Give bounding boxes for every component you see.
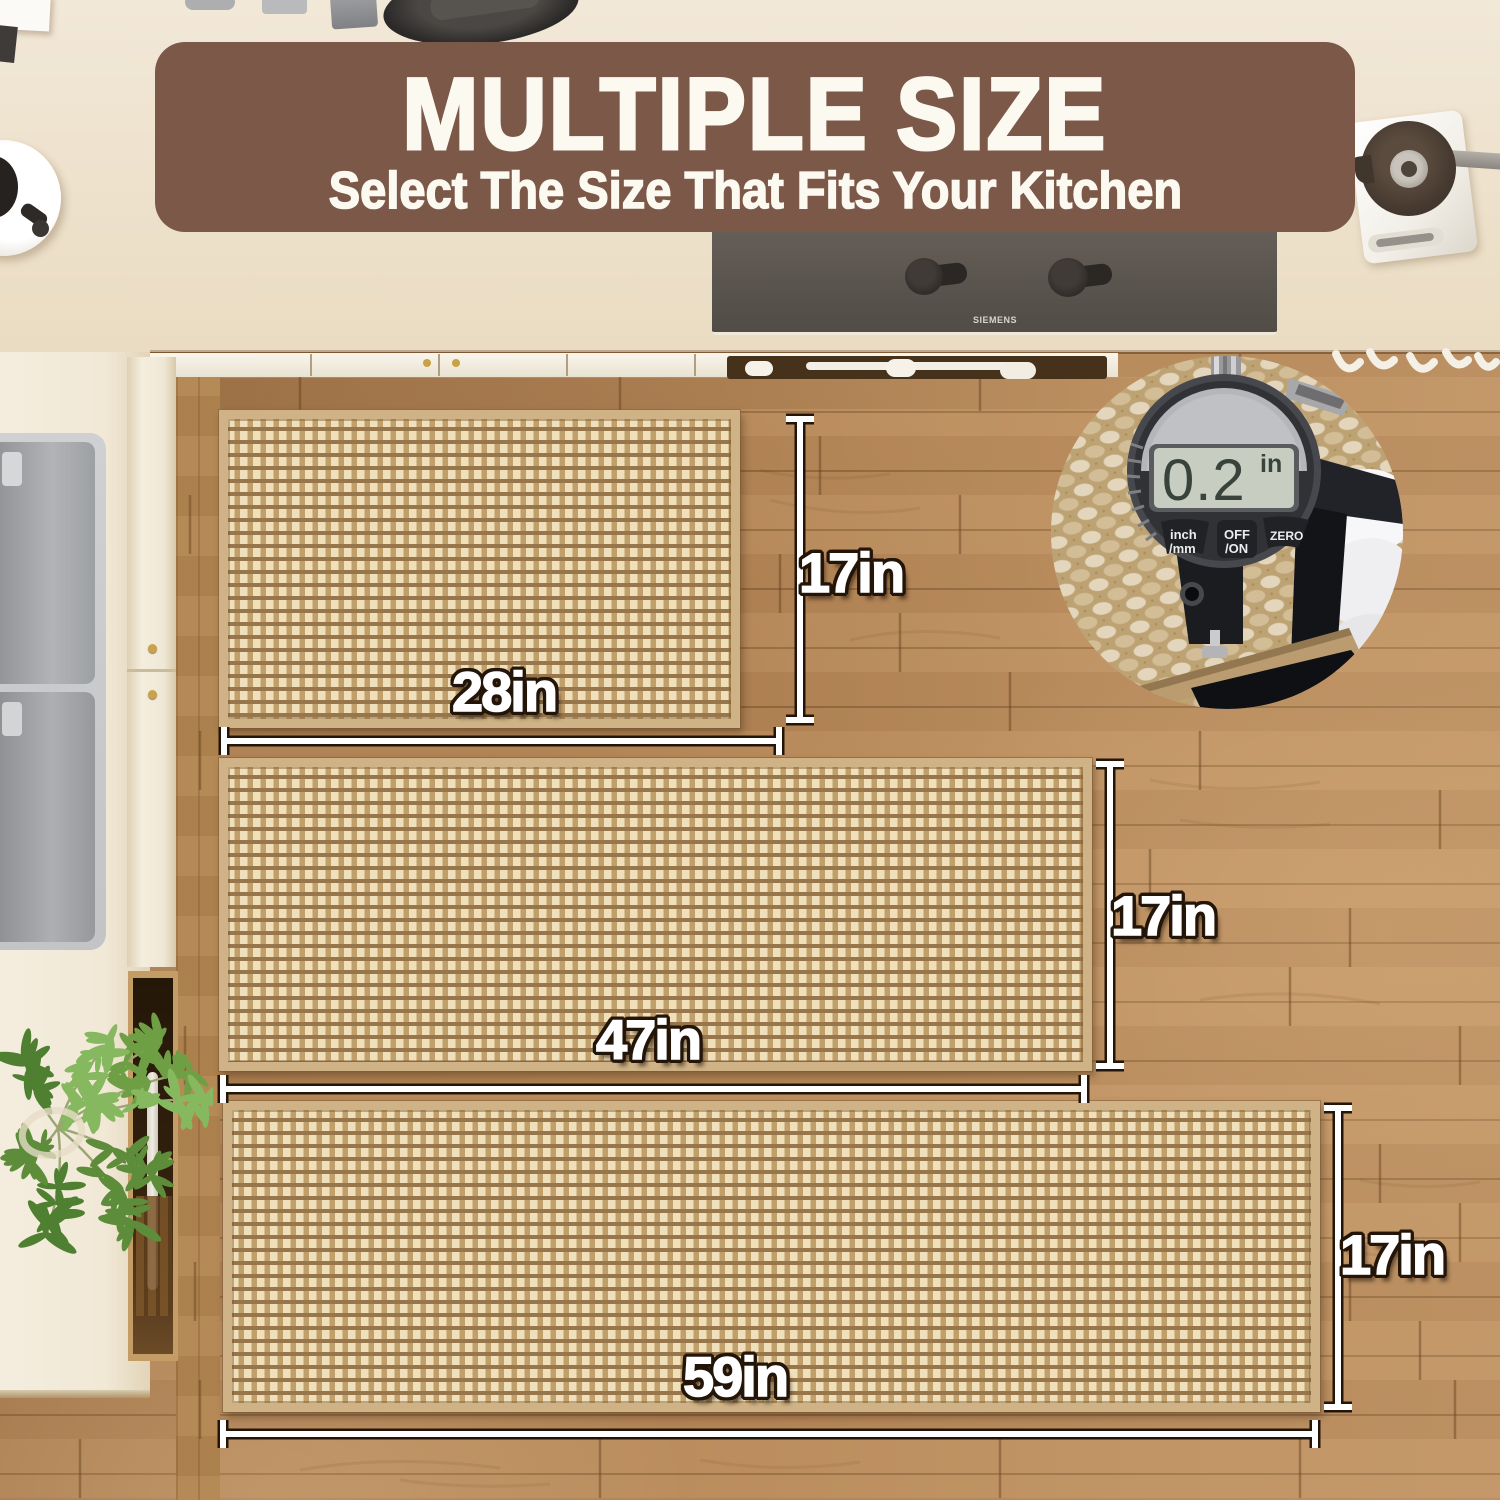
svg-text:OFF: OFF xyxy=(1224,527,1250,542)
svg-text:/ON: /ON xyxy=(1225,541,1248,556)
svg-text:in: in xyxy=(1260,450,1282,478)
svg-text:inch: inch xyxy=(1170,527,1197,542)
svg-text:/mm: /mm xyxy=(1169,541,1196,556)
svg-text:0.2: 0.2 xyxy=(1162,448,1246,513)
svg-text:ZERO: ZERO xyxy=(1270,529,1303,543)
